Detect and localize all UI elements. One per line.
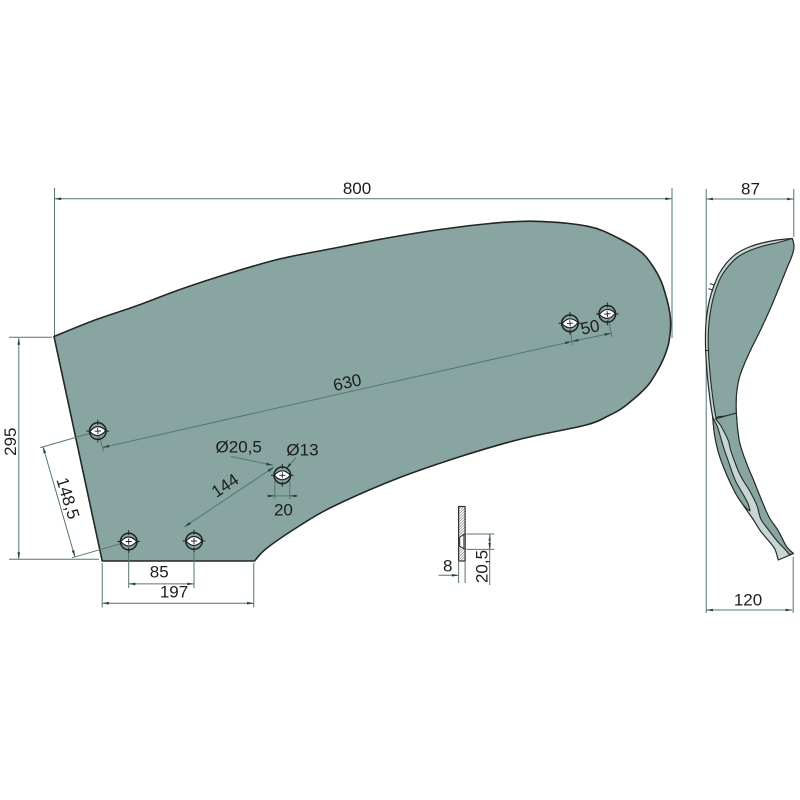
svg-text:50: 50 xyxy=(579,316,601,338)
svg-text:Ø13: Ø13 xyxy=(286,441,318,460)
svg-text:197: 197 xyxy=(160,583,188,602)
svg-text:87: 87 xyxy=(741,180,760,199)
svg-text:295: 295 xyxy=(1,428,20,456)
svg-text:800: 800 xyxy=(343,179,371,198)
svg-text:120: 120 xyxy=(734,591,762,610)
svg-text:8: 8 xyxy=(443,556,452,575)
svg-text:85: 85 xyxy=(150,562,169,581)
svg-text:20: 20 xyxy=(274,500,293,519)
svg-text:Ø20,5: Ø20,5 xyxy=(216,438,262,457)
svg-text:20,5: 20,5 xyxy=(472,550,491,583)
